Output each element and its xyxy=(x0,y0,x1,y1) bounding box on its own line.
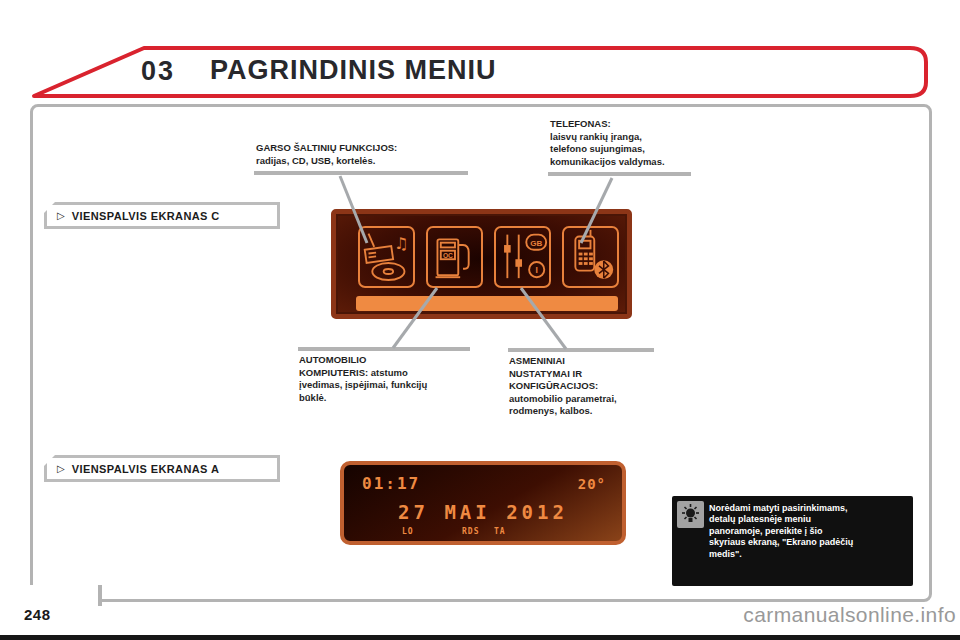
bottom-edge-strip xyxy=(0,635,960,640)
chapter-number: 03 xyxy=(141,56,175,87)
indicator-lo: LO xyxy=(402,527,414,536)
display-date: 27 MAI 2012 xyxy=(344,501,622,523)
phone-bluetooth-icon xyxy=(564,228,617,285)
callout-pers-line5: rodmenys, kalbos. xyxy=(509,405,679,418)
callout-trip-line4: būklė. xyxy=(299,392,479,405)
callout-phone-line4: komunikacijos valdymas. xyxy=(550,156,665,169)
callout-phone-line2: laisvų rankių įranga, xyxy=(550,131,665,144)
callout-audio-underline xyxy=(254,171,468,175)
note-line5: medis". xyxy=(709,549,907,560)
callout-telephone: TELEFONAS: laisvų rankių įranga, telefon… xyxy=(550,118,665,168)
note-line3: panoramoje, pereikite į šio xyxy=(709,526,907,537)
menu-tile-audio: ♫ xyxy=(358,226,415,288)
svg-text:OC: OC xyxy=(443,252,453,259)
manual-page: 03 PAGRINDINIS MENIU ▷ VIENSPALVIS EKRAN… xyxy=(0,0,960,640)
banner-screen-c: ▷ VIENSPALVIS EKRANAS C xyxy=(44,202,280,229)
callout-pers-line4: automobilio parametrai, xyxy=(509,393,679,406)
svg-text:GB: GB xyxy=(530,239,542,248)
indicator-rds: RDS xyxy=(462,527,479,536)
trip-computer-icon: OC xyxy=(428,228,481,285)
callout-trip-line3: įvedimas, įspėjimai, funkcijų xyxy=(299,379,479,392)
banner-screen-a: ▷ VIENSPALVIS EKRANAS A xyxy=(44,455,280,482)
banner-screen-c-label: VIENSPALVIS EKRANAS C xyxy=(72,210,220,222)
bulb-icon xyxy=(677,501,704,528)
display-screen-c: ♫ OC xyxy=(331,209,632,319)
callout-pers-line3: KONFIGŪRACIJOS: xyxy=(509,380,679,393)
menu-tile-settings: GB I xyxy=(494,226,551,288)
callout-personalization-overline xyxy=(508,348,654,352)
audio-sources-icon: ♫ xyxy=(360,228,413,285)
svg-text:♫: ♫ xyxy=(394,234,408,253)
display-screen-a: 01:17 20° 27 MAI 2012 LO RDS TA xyxy=(340,461,626,545)
note-line2: detalų platesnėje meniu xyxy=(709,514,907,525)
callout-audio-line1: GARSO ŠALTINIŲ FUNKCIJOS: xyxy=(256,142,397,155)
callout-trip-overline xyxy=(298,347,470,351)
callout-trip-line2: KOMPIUTERIS: atstumo xyxy=(299,367,479,380)
callout-personalization: ASMENINIAI NUSTATYMAI IR KONFIGŪRACIJOS:… xyxy=(509,355,679,418)
display-temperature: 20° xyxy=(578,476,606,492)
settings-sliders-icon: GB I xyxy=(496,228,549,285)
callout-trip-computer: AUTOMOBILIO KOMPIUTERIS: atstumo įvedima… xyxy=(299,354,479,404)
info-note: Norėdami matyti pasirinkimams, detalų pl… xyxy=(672,496,913,586)
callout-pers-line1: ASMENINIAI xyxy=(509,355,679,368)
watermark: carmanualsonline.info xyxy=(620,603,956,627)
menu-icon-row: ♫ OC xyxy=(358,226,619,288)
callout-trip-line1: AUTOMOBILIO xyxy=(299,354,479,367)
triangle-arrow-icon: ▷ xyxy=(57,211,65,221)
display-time: 01:17 xyxy=(362,474,420,493)
note-icon-square xyxy=(677,501,704,528)
banner-screen-a-label: VIENSPALVIS EKRANAS A xyxy=(72,463,220,475)
frame-notch xyxy=(26,585,100,607)
menu-tile-telephone xyxy=(562,226,619,288)
callout-phone-line3: telefono sujungimas, xyxy=(550,143,665,156)
triangle-arrow-icon: ▷ xyxy=(57,464,65,474)
indicator-ta: TA xyxy=(494,527,506,536)
callout-audio-line2: radijas, CD, USB, kortelės. xyxy=(256,155,397,168)
page-title: PAGRINDINIS MENIU xyxy=(210,55,497,86)
note-line4: skyriaus ekraną, "Ekrano padėčių xyxy=(709,537,907,548)
menu-selection-bar xyxy=(356,296,618,311)
svg-text:I: I xyxy=(535,265,537,275)
callout-phone-line1: TELEFONAS: xyxy=(550,118,665,131)
menu-tile-trip-computer: OC xyxy=(426,226,483,288)
callout-phone-underline xyxy=(548,172,691,176)
frame-notch-line xyxy=(98,585,102,606)
note-line1: Norėdami matyti pasirinkimams, xyxy=(709,503,907,514)
callout-audio-sources: GARSO ŠALTINIŲ FUNKCIJOS: radijas, CD, U… xyxy=(256,142,397,167)
page-number: 248 xyxy=(24,606,51,623)
note-text: Norėdami matyti pasirinkimams, detalų pl… xyxy=(709,503,907,560)
callout-pers-line2: NUSTATYMAI IR xyxy=(509,368,679,381)
